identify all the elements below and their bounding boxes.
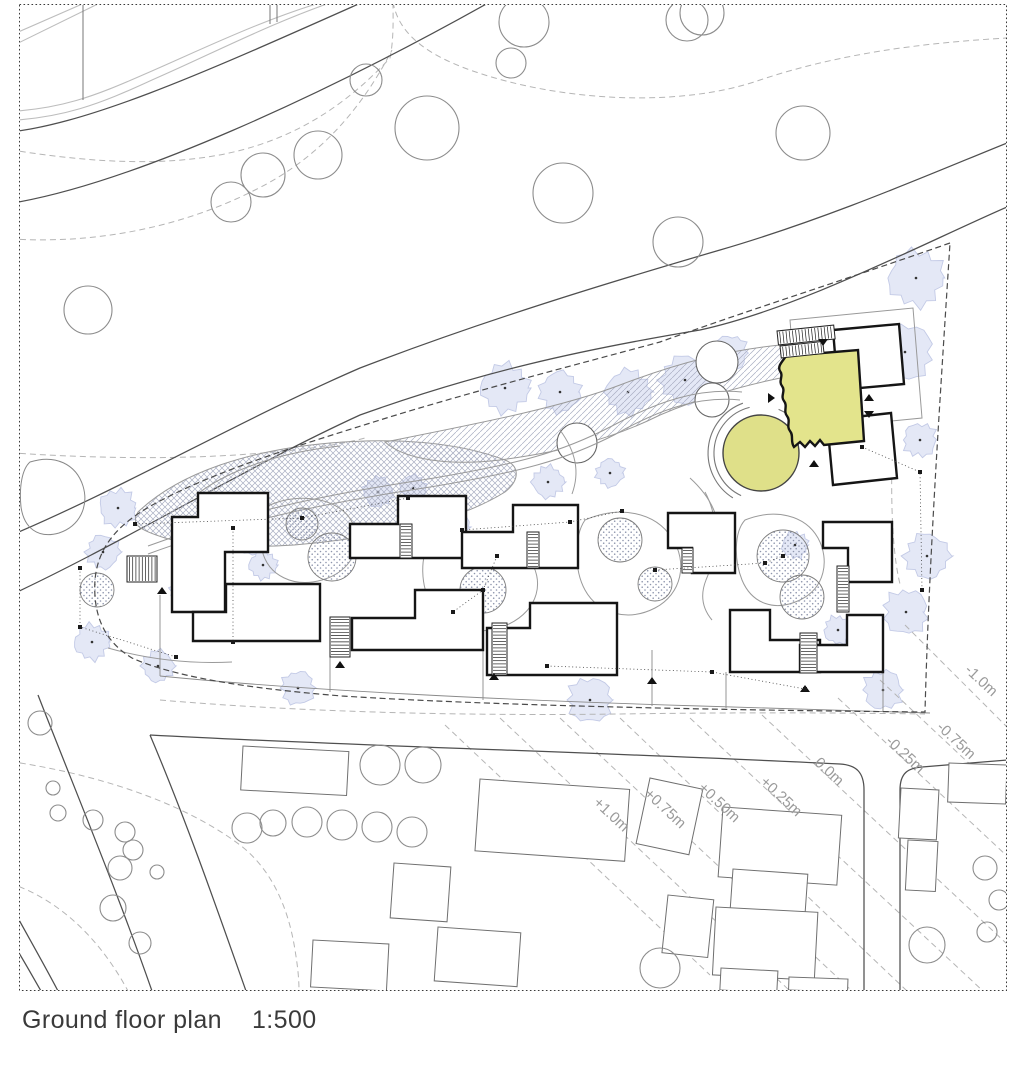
tree-circle — [405, 747, 441, 783]
tree-trunk-dot — [91, 641, 94, 644]
tree-trunk-dot — [547, 481, 550, 484]
planting-bed — [80, 573, 114, 607]
highlighted-building — [779, 350, 864, 447]
entrance-arrow-icon — [768, 393, 775, 403]
stair-core — [837, 566, 849, 612]
planting-bed — [598, 518, 642, 562]
entrance-arrow-icon — [157, 587, 167, 594]
light-post-dot — [495, 554, 499, 558]
tree-circle — [294, 131, 342, 179]
tree-trunk-dot — [504, 387, 507, 390]
tree-circle — [977, 922, 997, 942]
tree-trunk-dot — [589, 699, 592, 702]
light-post-dot — [653, 568, 657, 572]
tree-circle — [232, 813, 262, 843]
tree-trunk-dot — [117, 507, 120, 510]
neighbor-building-layer — [241, 746, 1007, 993]
contour-line — [393, 2, 1007, 98]
tree-circle — [696, 341, 738, 383]
light-post-dot — [568, 520, 572, 524]
tree-trunk-dot — [559, 391, 562, 394]
stair-core — [777, 325, 835, 345]
contour-line — [0, 760, 299, 991]
tree-circle — [360, 745, 400, 785]
stair-core — [492, 623, 507, 675]
entrance-arrow-icon — [864, 394, 874, 401]
tree-circle — [499, 0, 549, 47]
drawing-caption: Ground floor plan1:500 — [22, 1006, 317, 1035]
planting-bed — [286, 508, 318, 540]
planting-bed — [638, 567, 672, 601]
neighbor-building — [390, 863, 451, 922]
tree-circle — [241, 153, 285, 197]
caption-title: Ground floor plan — [22, 1006, 222, 1034]
neighbor-building — [311, 940, 389, 991]
tree-circle — [395, 96, 459, 160]
light-post-dot — [133, 522, 137, 526]
stair-core — [400, 524, 412, 558]
stair-core — [330, 617, 350, 657]
light-post-dot — [451, 610, 455, 614]
neighbor-building — [898, 788, 939, 840]
tree-circle — [533, 163, 593, 223]
contour-line — [160, 700, 925, 714]
tree-circle — [108, 856, 132, 880]
contour-elevation-label: 0.0m — [811, 754, 847, 789]
tree-trunk-dot — [915, 277, 918, 280]
stair-core — [127, 556, 157, 582]
neighbor-building — [720, 968, 778, 993]
light-post-dot — [763, 561, 767, 565]
tree-trunk-dot — [837, 629, 840, 632]
tree-circle — [640, 948, 680, 988]
road-edge — [0, 0, 110, 52]
light-post-dot — [174, 655, 178, 659]
road-edge — [150, 735, 246, 991]
site-plan-page: { "caption": {"title": "Ground floor pla… — [0, 0, 1024, 1076]
tree-circle — [129, 932, 151, 954]
tree-circle — [496, 48, 526, 78]
garden-path — [108, 648, 232, 662]
road-edge — [0, 922, 41, 991]
light-post-dot — [231, 640, 235, 644]
tree-circle — [64, 286, 112, 334]
tree-trunk-dot — [102, 551, 105, 554]
road-edge — [0, 0, 372, 133]
light-post-dot — [78, 625, 82, 629]
caption-scale: 1:500 — [252, 1006, 317, 1034]
neighbor-building — [662, 895, 714, 957]
tree-circle — [115, 822, 135, 842]
stair-core — [682, 548, 693, 573]
road-edge — [0, 0, 344, 121]
tree-circle — [150, 865, 164, 879]
tree-circle — [327, 810, 357, 840]
site-plan-drawing: +1.0m+0.75m+0.50m+0.25m0.0m-0.25m-0.75m-… — [0, 0, 1024, 1076]
tree-circle — [397, 817, 427, 847]
tree-circle — [260, 810, 286, 836]
house-footprint — [462, 505, 578, 568]
light-post-dot — [860, 445, 864, 449]
planting-bed — [780, 575, 824, 619]
tree-circle — [362, 812, 392, 842]
tree-circle — [776, 106, 830, 160]
light-post-dot — [406, 496, 410, 500]
light-post-dot — [460, 528, 464, 532]
tree-circle — [973, 856, 997, 880]
contour-elevation-label: -0.75m — [933, 719, 979, 763]
tree-circle — [83, 810, 103, 830]
tree-trunk-dot — [919, 439, 922, 442]
house-footprint — [823, 522, 892, 582]
contour-elevation-label: -0.25m — [882, 733, 928, 777]
contour-line — [905, 625, 1007, 727]
light-post-dot — [620, 509, 624, 513]
light-post-dot — [920, 588, 924, 592]
neighbor-building — [789, 977, 848, 992]
road-edge — [0, 0, 497, 205]
tree-trunk-dot — [905, 611, 908, 614]
entrance-arrow-icon — [335, 661, 345, 668]
tree-circle — [292, 807, 322, 837]
light-post-dot — [481, 588, 485, 592]
stair-core — [527, 532, 539, 568]
tree-trunk-dot — [926, 555, 929, 558]
road-edge — [0, 0, 96, 40]
light-post-dot — [918, 470, 922, 474]
neighbor-building — [434, 927, 521, 987]
light-post-dot — [78, 566, 82, 570]
tree-trunk-dot — [262, 564, 265, 567]
road-edge — [0, 0, 336, 112]
entrance-arrow-icon — [647, 677, 657, 684]
light-post-dot — [803, 687, 807, 691]
neighbor-building — [905, 840, 938, 892]
entrance-arrow-icon — [809, 460, 819, 467]
tree-circle — [50, 805, 66, 821]
light-post-dot — [781, 554, 785, 558]
tree-trunk-dot — [609, 472, 612, 475]
neighbor-building — [241, 746, 349, 795]
house-footprint — [668, 513, 735, 573]
house-footprint — [352, 590, 483, 650]
road-edge — [38, 695, 152, 991]
tree-circle — [350, 64, 382, 96]
neighbor-building — [948, 763, 1007, 804]
tree-circle — [46, 781, 60, 795]
light-post-dot — [710, 670, 714, 674]
light-post-dot — [300, 516, 304, 520]
stair-core — [800, 633, 817, 673]
tree-trunk-dot — [904, 351, 907, 354]
light-post-dot — [231, 526, 235, 530]
tree-circle — [653, 217, 703, 267]
contour-elevation-label: -1.0m — [961, 661, 1001, 700]
contour-elevation-label: +0.50m — [695, 779, 743, 826]
rock-outline — [20, 459, 84, 534]
tree-circle — [909, 927, 945, 963]
contour-line — [0, 50, 392, 240]
light-post-dot — [545, 664, 549, 668]
